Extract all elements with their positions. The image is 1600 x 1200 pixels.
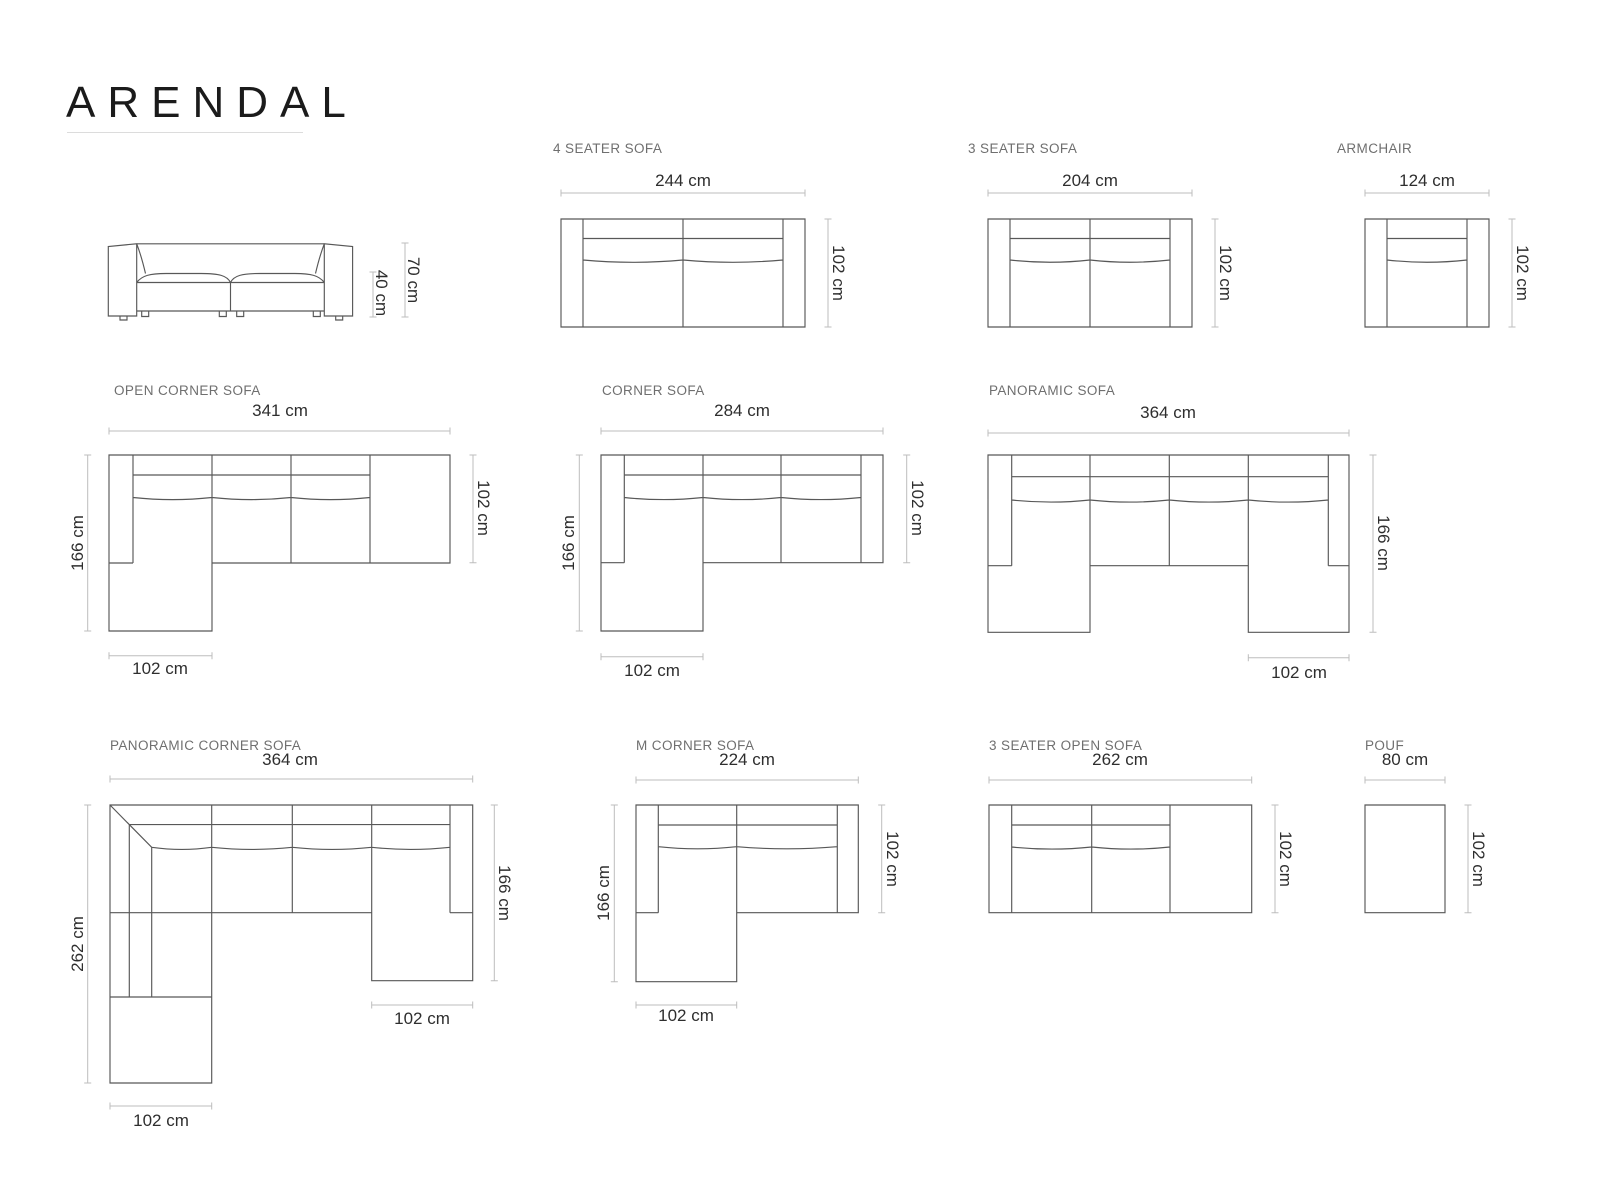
- panoramic-sofa-drawing: [930, 377, 1410, 687]
- chaise-width-dimension-label: 102 cm: [658, 1006, 714, 1026]
- spec-sheet-page: ARENDAL 40 cm 70 cm 4 SEATER SOFA 244 cm…: [0, 0, 1600, 1200]
- width-dimension-label: 284 cm: [714, 401, 770, 421]
- width-dimension-label: 364 cm: [262, 750, 318, 770]
- width-dimension-label: 204 cm: [1062, 171, 1118, 191]
- width-dimension-label: 341 cm: [252, 401, 308, 421]
- diagram-pouf: POUF 80 cm 102 cm: [1310, 730, 1500, 950]
- armchair-drawing: [1334, 135, 1544, 335]
- chaise-right-width-dimension-label: 102 cm: [394, 1009, 450, 1029]
- depth-dimension-label: 102 cm: [907, 480, 927, 536]
- page-title: ARENDAL: [66, 78, 358, 128]
- depth-dimension-label: 102 cm: [473, 480, 493, 536]
- depth-dimension-label: 102 cm: [1512, 245, 1532, 301]
- total-depth-dimension-label: 166 cm: [559, 515, 579, 571]
- width-dimension-label: 244 cm: [655, 171, 711, 191]
- diagram-armchair: ARMCHAIR 124 cm 102 cm: [1334, 135, 1544, 335]
- left-depth-dimension-label: 262 cm: [68, 916, 88, 972]
- corner-sofa-drawing: [540, 377, 950, 687]
- depth-dimension-label: 102 cm: [1468, 831, 1488, 887]
- chaise-width-dimension-label: 102 cm: [624, 661, 680, 681]
- depth-dimension-label: 102 cm: [828, 245, 848, 301]
- width-dimension-label: 124 cm: [1399, 171, 1455, 191]
- left-depth-dimension-label: 166 cm: [594, 865, 614, 921]
- right-depth-dimension-label: 102 cm: [882, 831, 902, 887]
- right-depth-dimension-label: 166 cm: [494, 865, 514, 921]
- depth-dimension-label: 102 cm: [1275, 831, 1295, 887]
- width-dimension-label: 364 cm: [1140, 403, 1196, 423]
- diagram-panoramic-corner-sofa: PANORAMIC CORNER SOFA 364 cm 262 cm 166 …: [50, 730, 530, 1140]
- 3-seater-sofa-drawing: [965, 135, 1250, 335]
- width-dimension-label: 80 cm: [1382, 750, 1428, 770]
- total-height-dimension-label: 70 cm: [403, 257, 423, 303]
- open-corner-sofa-drawing: [60, 377, 510, 687]
- total-depth-dimension-label: 166 cm: [1373, 515, 1393, 571]
- diagram-3-seater-sofa: 3 SEATER SOFA 204 cm 102 cm: [965, 135, 1250, 335]
- total-depth-dimension-label: 166 cm: [68, 515, 88, 571]
- depth-dimension-label: 102 cm: [1215, 245, 1235, 301]
- width-dimension-label: 262 cm: [1092, 750, 1148, 770]
- diagram-3-seater-open-sofa: 3 SEATER OPEN SOFA 262 cm 102 cm: [940, 730, 1305, 950]
- diagram-panoramic-sofa: PANORAMIC SOFA 364 cm 166 cm 102 cm: [930, 377, 1410, 687]
- diagram-open-corner-sofa: OPEN CORNER SOFA 341 cm 166 cm 102 cm 10…: [60, 377, 510, 687]
- chaise-width-dimension-label: 102 cm: [132, 659, 188, 679]
- diagram-corner-sofa: CORNER SOFA 284 cm 166 cm 102 cm 102 cm: [540, 377, 950, 687]
- chaise-width-dimension-label: 102 cm: [1271, 663, 1327, 683]
- chaise-bottom-width-dimension-label: 102 cm: [133, 1111, 189, 1131]
- width-dimension-label: 224 cm: [719, 750, 775, 770]
- 4-seater-sofa-drawing: [550, 135, 860, 335]
- diagram-side-view: 40 cm 70 cm: [100, 235, 440, 335]
- panoramic-corner-sofa-drawing: [50, 730, 530, 1140]
- seat-height-dimension-label: 40 cm: [371, 270, 391, 316]
- title-underline: [67, 132, 303, 133]
- diagram-m-corner-sofa: M CORNER SOFA 224 cm 166 cm 102 cm 102 c…: [560, 730, 910, 1040]
- diagram-4-seater-sofa: 4 SEATER SOFA 244 cm 102 cm: [550, 135, 860, 335]
